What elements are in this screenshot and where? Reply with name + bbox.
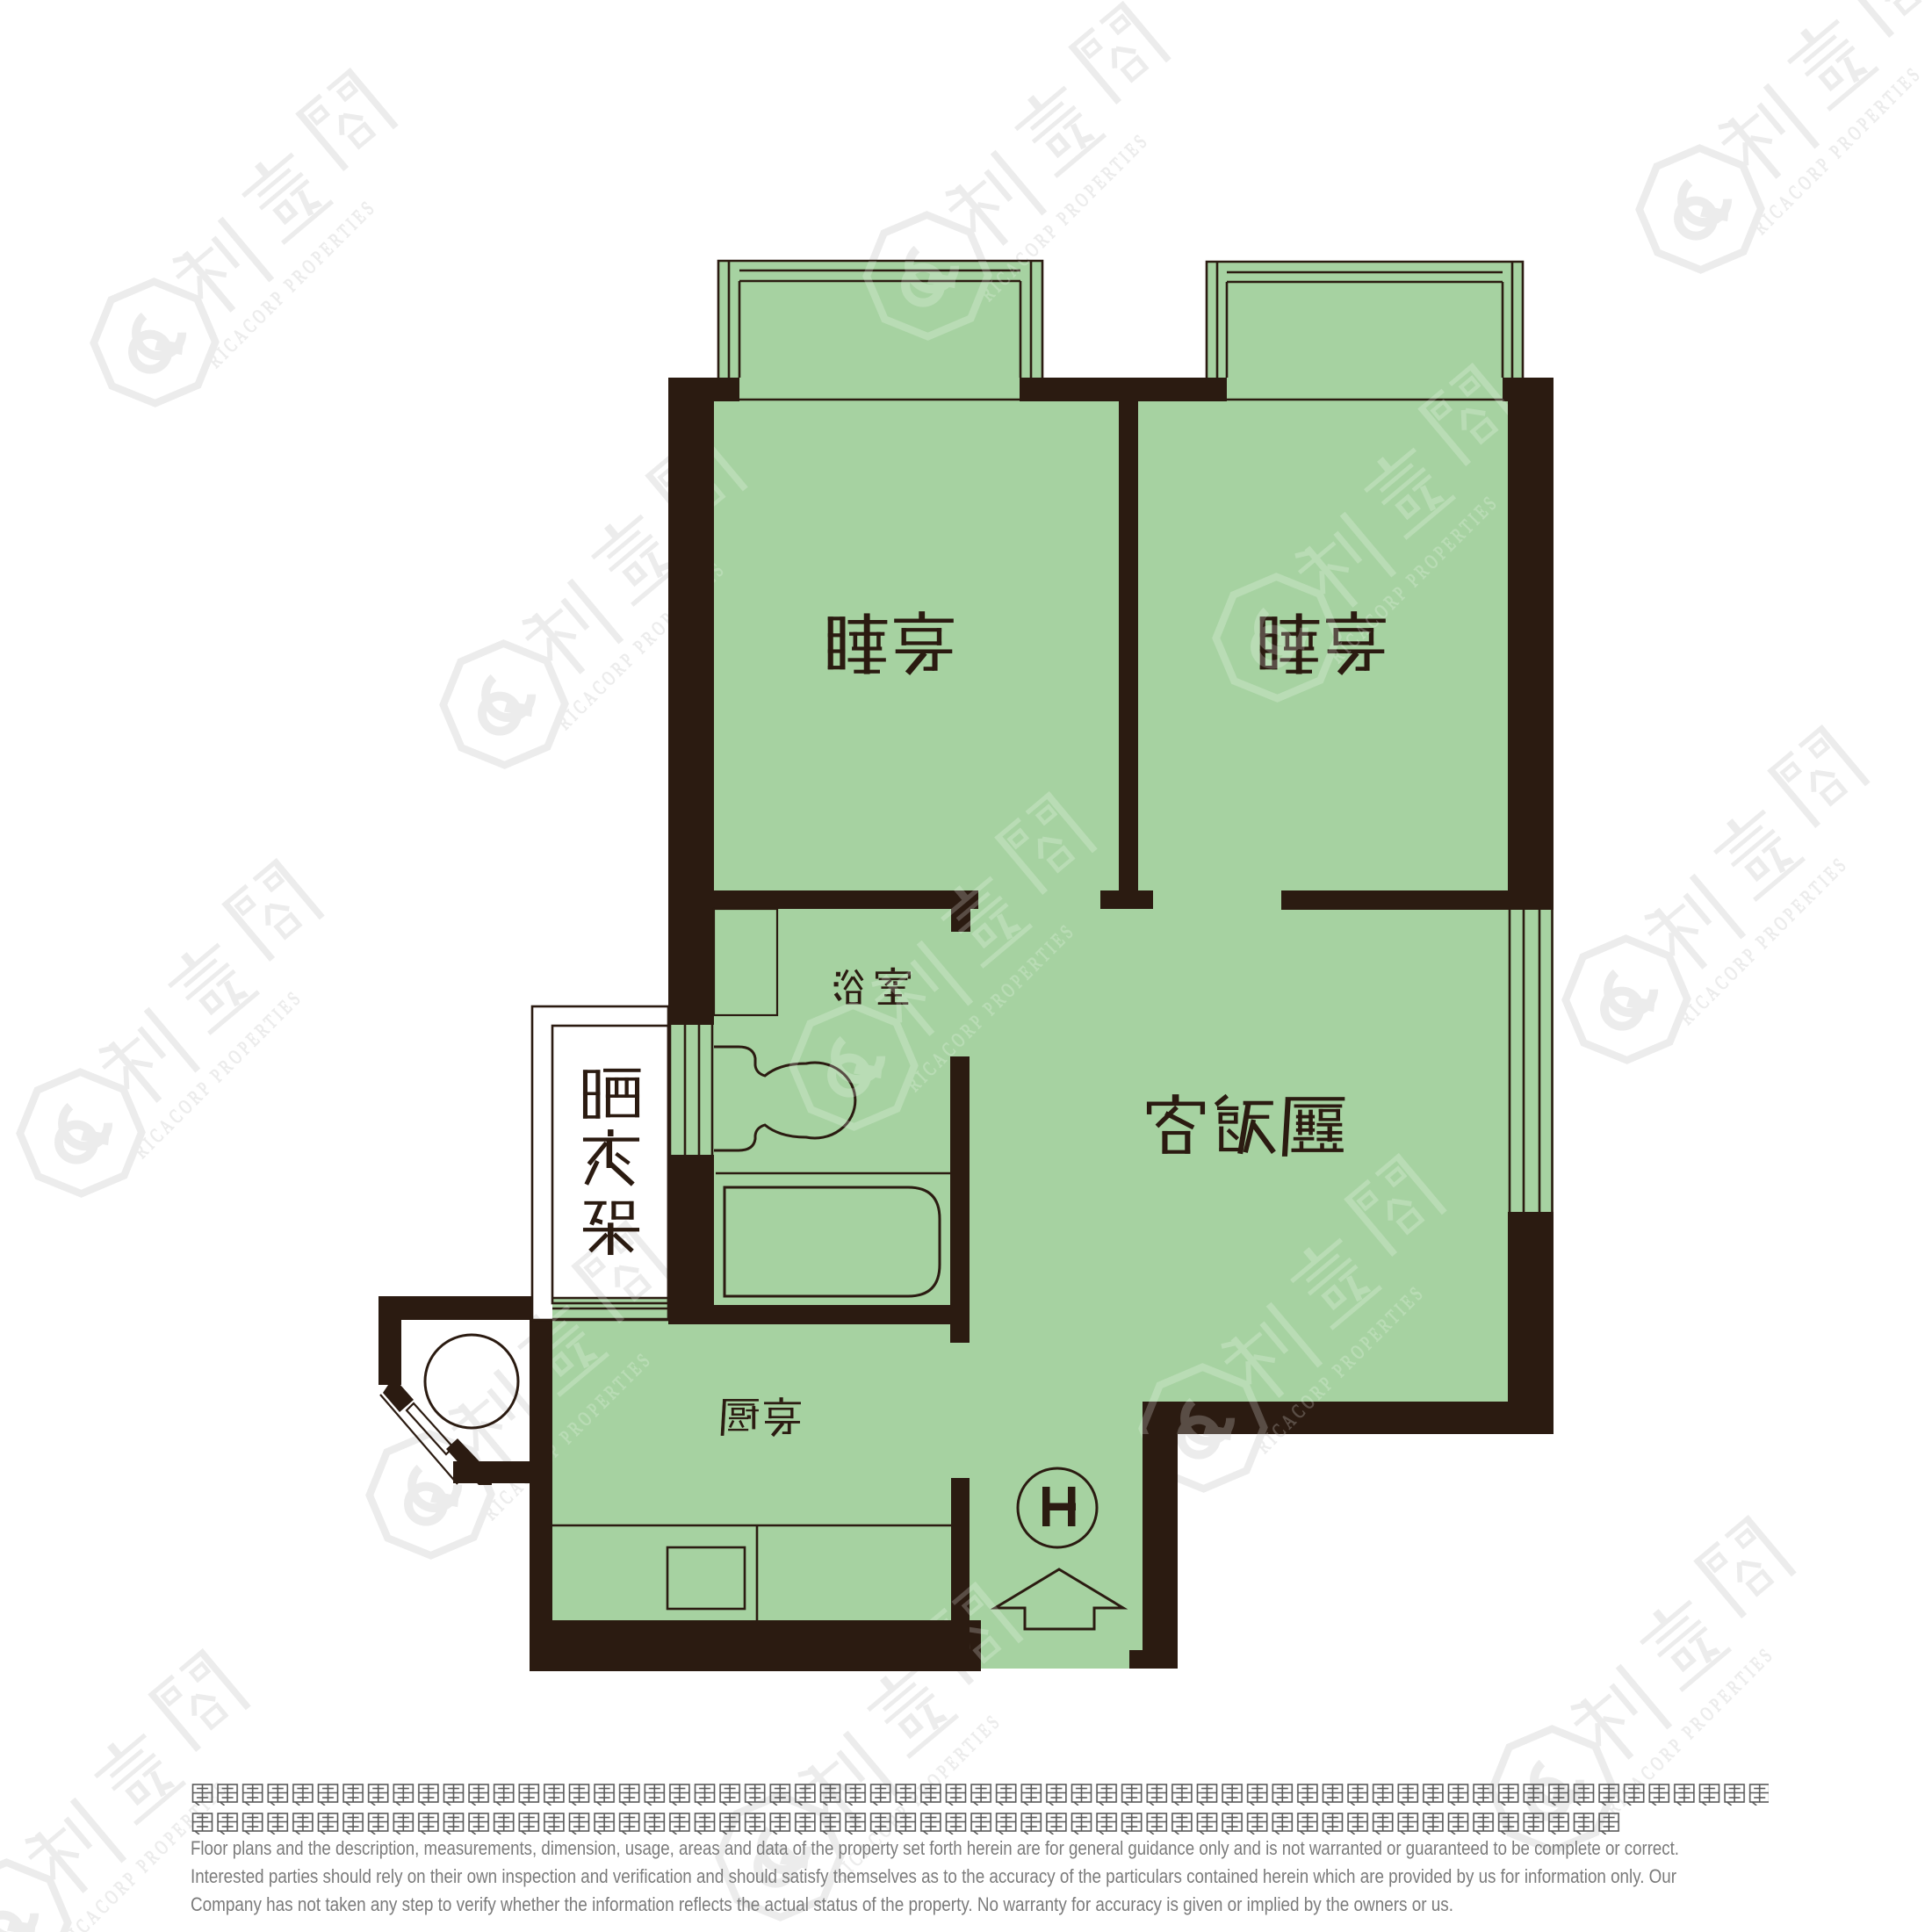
svg-text:Company has not taken any step: Company has not taken any step to verify…	[191, 1893, 1453, 1915]
svg-text:Floor plans and the descriptio: Floor plans and the description, measure…	[191, 1837, 1679, 1859]
svg-text:Interested parties should rely: Interested parties should rely on their …	[191, 1865, 1676, 1887]
